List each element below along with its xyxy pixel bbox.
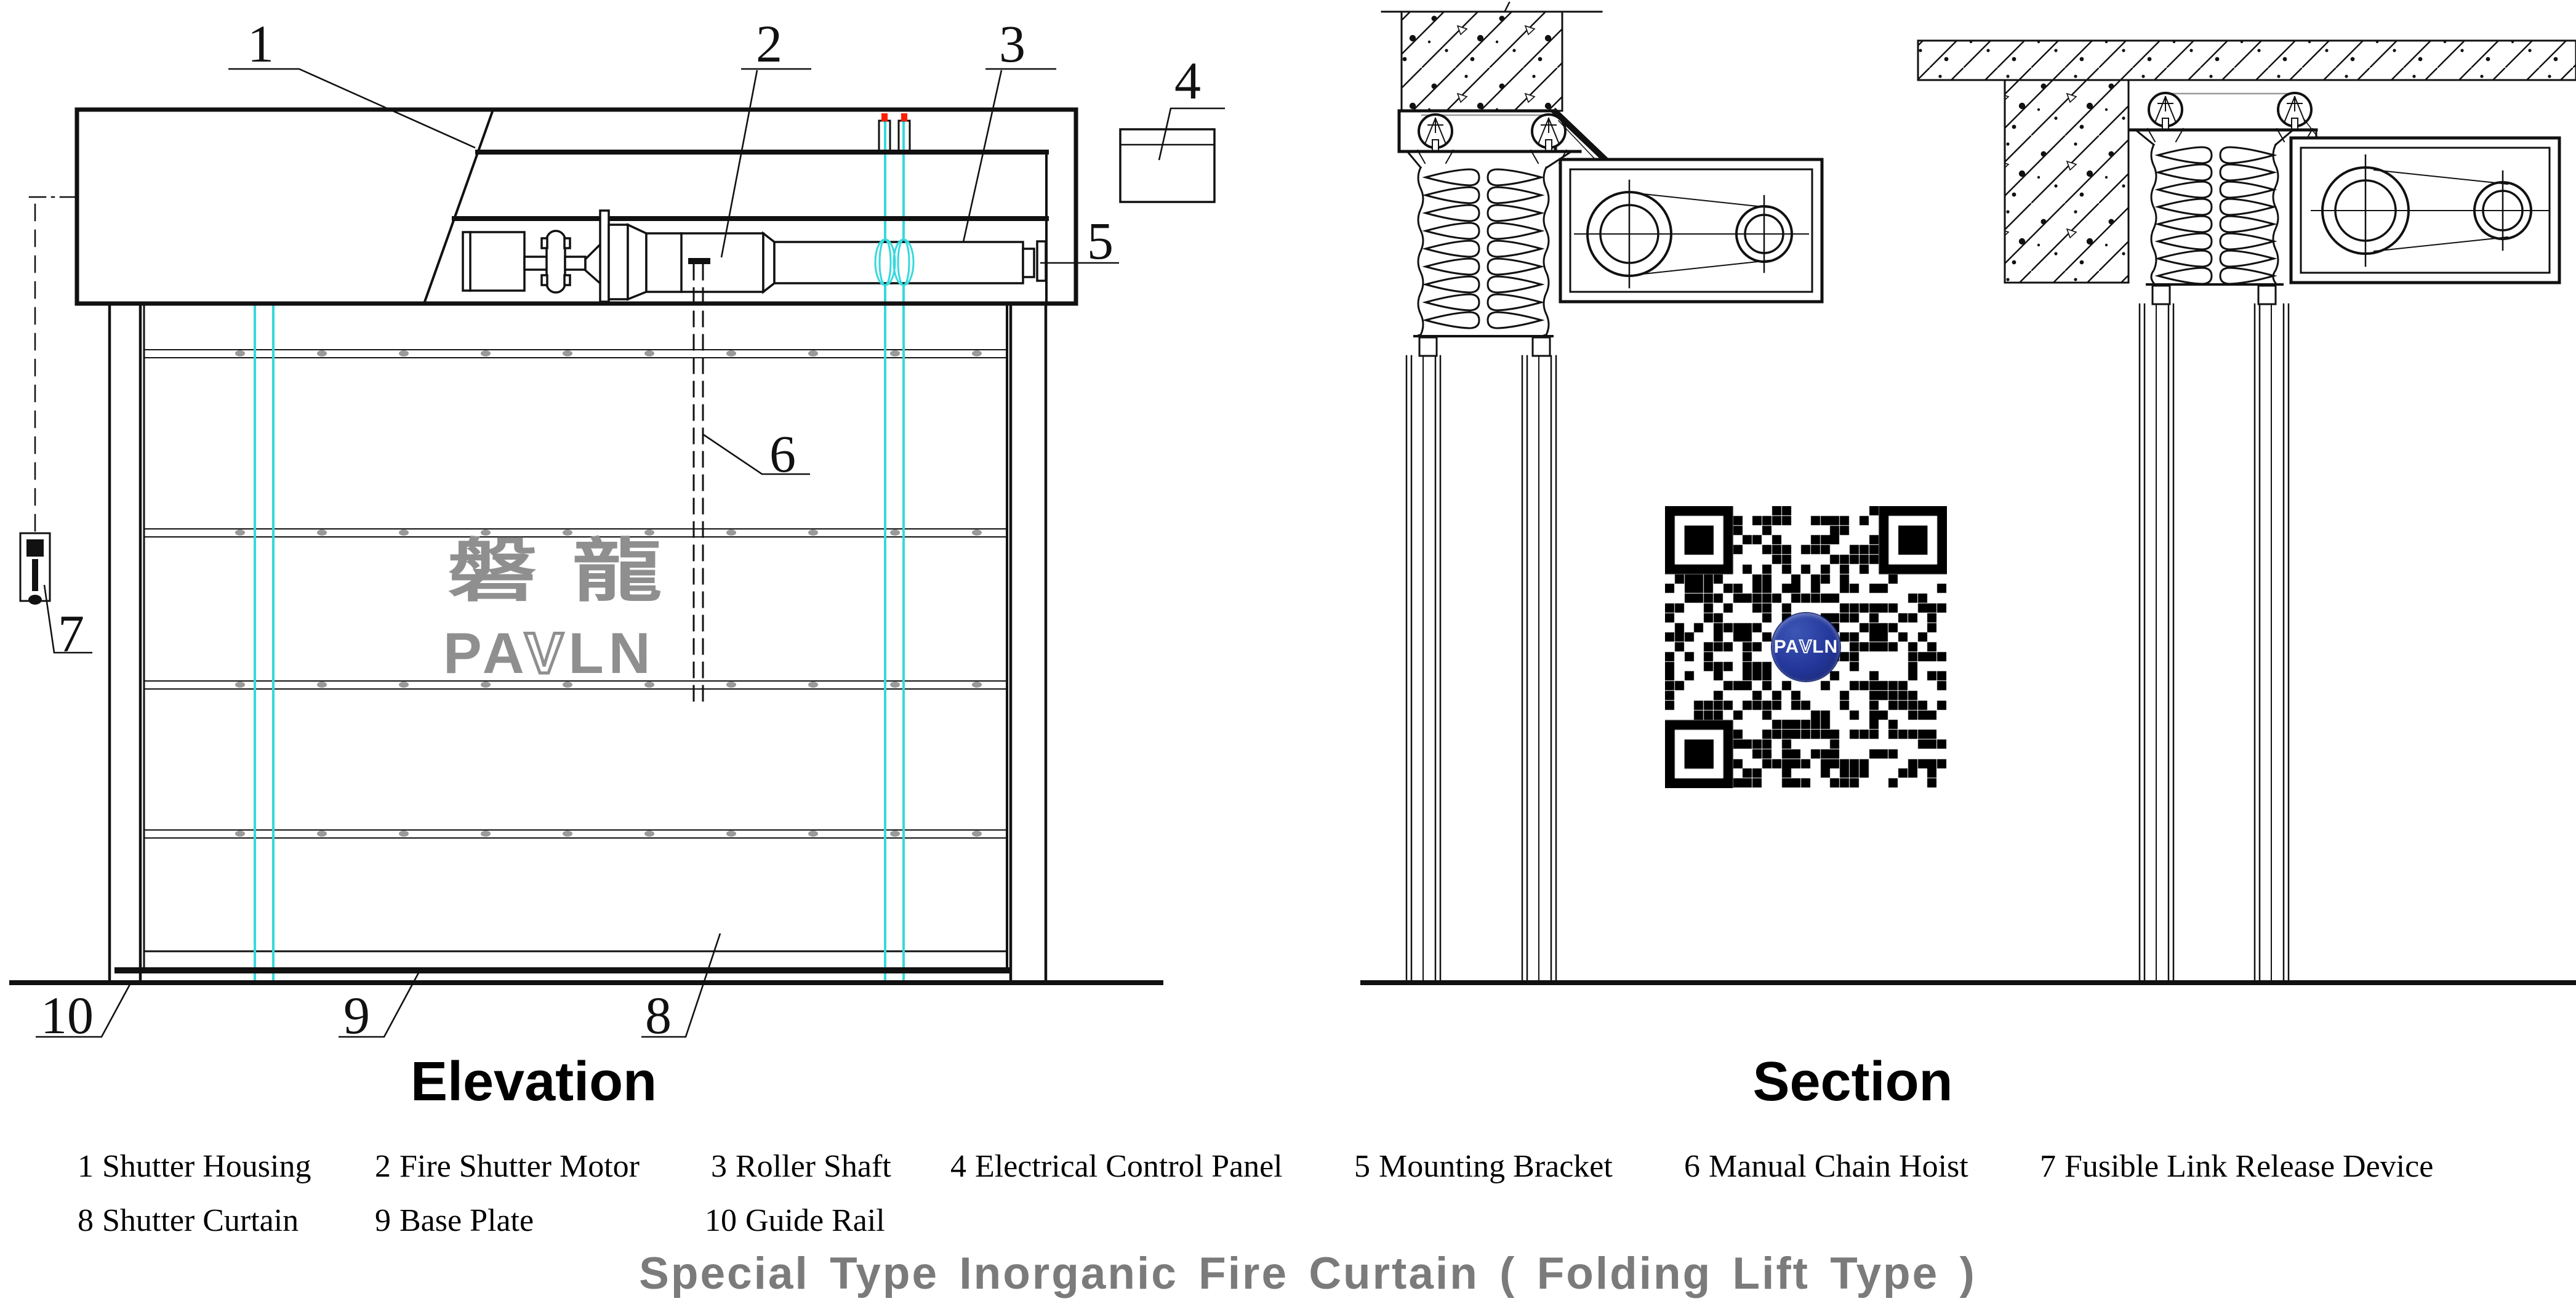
seam-rivet (808, 682, 818, 688)
stack-side-wall (2273, 145, 2278, 283)
concrete-ceiling (1402, 12, 1562, 111)
fold-leaf (2220, 164, 2274, 180)
fold-leaf (2220, 233, 2274, 249)
seam-rivet (890, 831, 900, 837)
callout-9: 9 (343, 989, 370, 1042)
folded-curtain-stack (2151, 145, 2278, 284)
fold-leaf (1488, 187, 1541, 203)
guide-shoe (1419, 337, 1437, 356)
section-heading: Section (1730, 1054, 1976, 1110)
fold-leaf (1426, 205, 1479, 221)
fold-leaf (1488, 276, 1541, 292)
seam-rivet (235, 682, 245, 688)
seam-rivet (644, 350, 654, 356)
guide-rails-section (2140, 304, 2289, 980)
callout-8: 8 (645, 989, 672, 1042)
fold-leaf (2220, 182, 2274, 198)
legend-item-1: 1Shutter Housing (78, 1149, 311, 1184)
callout-2: 2 (756, 17, 782, 70)
mounting-bracket (1037, 241, 1046, 281)
seam-rivet (399, 350, 409, 356)
callout-10: 10 (41, 989, 94, 1042)
concrete-ceiling-band (1918, 41, 2576, 80)
seam-rivet (399, 831, 409, 837)
drive-unit (2291, 138, 2559, 283)
ground-line-elevation (9, 980, 1163, 985)
guide-shoe (2153, 286, 2170, 304)
technical-drawing-page: 1 2 3 4 5 6 7 8 9 10 磐龍 PAVLN PAVLN Elev… (0, 0, 2576, 1309)
fold-leaf (2220, 268, 2274, 284)
guide-shoe (2258, 286, 2276, 304)
seam-rivet (890, 682, 900, 688)
fold-leaf (2158, 233, 2212, 249)
legend-item-7: 7Fusible Link Release Device (2040, 1149, 2433, 1184)
seam-rivet (726, 350, 736, 356)
watermark-brand: PAVLN (443, 624, 656, 682)
belt-anchor-red-right (901, 113, 907, 121)
legend-item-8: 8Shutter Curtain (78, 1203, 299, 1238)
drawing-title: Special Type Inorganic Fire Curtain ( Fo… (0, 1251, 2576, 1296)
callout-5: 5 (1087, 214, 1113, 267)
watermark-cjk: 磐龍 (447, 537, 697, 606)
callout-7: 7 (58, 607, 84, 660)
seam-rivet (481, 350, 491, 356)
fold-leaf (1426, 312, 1479, 328)
fold-leaf (2158, 251, 2212, 267)
fold-leaf (1426, 259, 1479, 275)
seam-rivet (972, 682, 982, 688)
seam-rivet (563, 831, 572, 837)
stack-side-wall (1418, 167, 1423, 336)
qr-logo-v: V (1799, 637, 1812, 658)
callout-1: 1 (247, 17, 274, 70)
fold-leaf (1488, 169, 1541, 185)
electrical-control-panel (1120, 129, 1214, 202)
seam-rivet (317, 350, 327, 356)
fold-leaf (2220, 216, 2274, 232)
fold-leaf (2158, 182, 2212, 198)
seam-rivet (972, 530, 982, 536)
drawing-canvas (0, 0, 2576, 1309)
fold-leaf (2220, 199, 2274, 215)
seam-rivet (399, 682, 409, 688)
seam-rivet (317, 530, 327, 536)
stack-side-wall (1544, 167, 1549, 336)
callout-3: 3 (999, 17, 1025, 70)
fold-leaf (1426, 187, 1479, 203)
seam-rivet (808, 350, 818, 356)
concrete-wall (2005, 80, 2129, 283)
legend-item-2: 2Fire Shutter Motor (375, 1149, 640, 1184)
guide-rail-left (110, 305, 140, 981)
fold-leaf (1488, 259, 1541, 275)
fold-leaf (1426, 294, 1479, 310)
seam-rivet (563, 350, 572, 356)
callout-4: 4 (1174, 54, 1201, 107)
seam-rivet (890, 350, 900, 356)
fold-leaf (1426, 169, 1479, 185)
seam-rivet (644, 831, 654, 837)
callout-6: 6 (769, 427, 796, 480)
seam-rivet (726, 831, 736, 837)
qr-logo-badge: PAVLN (1772, 613, 1840, 681)
legend-item-10: 10Guide Rail (705, 1203, 885, 1238)
qr-logo-pa: PA (1774, 637, 1799, 658)
fold-leaf (1488, 205, 1541, 221)
fold-leaf (2158, 199, 2212, 215)
fusible-link-release-device (20, 197, 76, 605)
watermark-v: V (525, 621, 569, 685)
fold-leaf (1488, 223, 1541, 239)
fold-leaf (1426, 223, 1479, 239)
seam-rivet (890, 530, 900, 536)
seam-rivet (235, 350, 245, 356)
seam-rivet (972, 350, 982, 356)
fold-leaf (2220, 147, 2274, 163)
belt-anchor-red-left (881, 113, 888, 121)
seam-rivet (808, 530, 818, 536)
guide-rails-section (1406, 356, 1556, 980)
seam-rivet (317, 831, 327, 837)
watermark-ln: LN (568, 621, 655, 685)
watermark-pa: PA (443, 621, 525, 685)
fold-leaf (2158, 164, 2212, 180)
legend-item-9: 9Base Plate (375, 1203, 534, 1238)
fold-leaf (2220, 251, 2274, 267)
legend-item-5: 5Mounting Bracket (1354, 1149, 1613, 1184)
seam-rivet (808, 831, 818, 837)
guide-rail-right (1011, 305, 1046, 981)
seam-rivet (726, 530, 736, 536)
legend-item-4: 4Electrical Control Panel (950, 1149, 1283, 1184)
base-plate (114, 967, 1012, 973)
guide-shoe (1533, 337, 1550, 356)
legend-item-6: 6Manual Chain Hoist (1684, 1149, 1968, 1184)
fold-leaf (1488, 241, 1541, 257)
fold-leaf (1488, 294, 1541, 310)
seam-rivet (972, 831, 982, 837)
fold-leaf (2158, 147, 2212, 163)
qr-logo-ln: LN (1812, 637, 1838, 658)
ground-line-section (1360, 980, 2576, 985)
seam-rivet (235, 831, 245, 837)
seam-rivet (726, 682, 736, 688)
seam-rivet (399, 530, 409, 536)
fold-leaf (1426, 276, 1479, 292)
elevation-heading: Elevation (398, 1054, 669, 1110)
section-view-left (1382, 2, 1822, 980)
section-view-right (1360, 41, 2576, 985)
stack-side-wall (2151, 145, 2156, 283)
folded-curtain-stack (1418, 167, 1549, 336)
fold-leaf (1426, 241, 1479, 257)
seam-rivet (235, 530, 245, 536)
seam-rivet (481, 831, 491, 837)
seam-rivet (317, 682, 327, 688)
legend-item-3: 3Roller Shaft (711, 1149, 891, 1184)
fold-leaf (2158, 268, 2212, 284)
drive-unit (1560, 159, 1822, 302)
fold-leaf (1488, 312, 1541, 328)
fold-leaf (2158, 216, 2212, 232)
